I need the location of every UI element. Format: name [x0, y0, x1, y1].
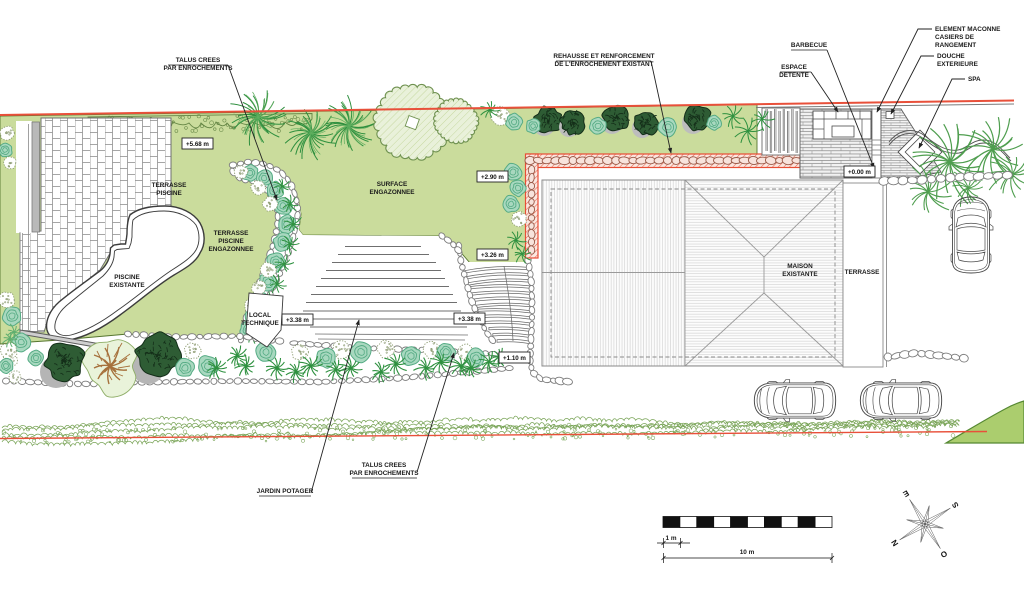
svg-text:ENGAZONNEE: ENGAZONNEE — [369, 189, 415, 196]
svg-text:TERRASSE: TERRASSE — [845, 269, 881, 276]
svg-text:REHAUSSE ET RENFORCEMENT: REHAUSSE ET RENFORCEMENT — [553, 53, 654, 60]
svg-text:PISCINE: PISCINE — [114, 274, 140, 281]
svg-text:TERRASSE: TERRASSE — [214, 230, 250, 237]
svg-text:EXISTANTE: EXISTANTE — [782, 271, 818, 278]
svg-text:O: O — [939, 549, 949, 560]
svg-text:TALUS CREES: TALUS CREES — [176, 57, 221, 64]
svg-text:BARBECUE: BARBECUE — [791, 42, 828, 49]
svg-text:N: N — [889, 538, 900, 548]
svg-text:ESPACE: ESPACE — [781, 64, 808, 71]
svg-text:PAR ENROCHEMENTS: PAR ENROCHEMENTS — [163, 65, 233, 72]
svg-text:DE L'ENROCHEMENT EXISTANT: DE L'ENROCHEMENT EXISTANT — [554, 61, 653, 68]
svg-text:CASIERS DE: CASIERS DE — [935, 34, 975, 41]
svg-text:ELEMENT MACONNE: ELEMENT MACONNE — [935, 26, 1001, 33]
svg-text:PISCINE: PISCINE — [218, 238, 244, 245]
svg-text:+1.10 m: +1.10 m — [503, 355, 526, 362]
svg-text:+5.68 m: +5.68 m — [186, 141, 209, 148]
svg-text:JARDIN POTAGER: JARDIN POTAGER — [257, 488, 314, 495]
svg-text:10 m: 10 m — [740, 549, 755, 556]
svg-text:DETENTE: DETENTE — [779, 72, 810, 79]
svg-text:+3.38 m: +3.38 m — [458, 316, 481, 323]
svg-text:SURFACE: SURFACE — [377, 181, 408, 188]
svg-text:+2.90 m: +2.90 m — [481, 174, 504, 181]
svg-text:EXISTANTE: EXISTANTE — [109, 282, 145, 289]
svg-text:+3.38 m: +3.38 m — [286, 317, 309, 324]
svg-text:+3.26 m: +3.26 m — [481, 252, 504, 259]
svg-text:PAR ENROCHEMENTS: PAR ENROCHEMENTS — [349, 470, 419, 477]
svg-text:TECHNIQUE: TECHNIQUE — [241, 320, 279, 327]
svg-text:ENGAZONNEE: ENGAZONNEE — [208, 246, 254, 253]
svg-text:TALUS CREES: TALUS CREES — [362, 462, 407, 469]
svg-text:RANGEMENT: RANGEMENT — [935, 42, 976, 49]
svg-text:MAISON: MAISON — [787, 263, 813, 270]
svg-text:LOCAL: LOCAL — [249, 312, 271, 319]
svg-text:DOUCHE: DOUCHE — [937, 53, 965, 60]
svg-text:PISCINE: PISCINE — [156, 190, 182, 197]
svg-text:EXTERIEURE: EXTERIEURE — [937, 61, 979, 68]
svg-text:SPA: SPA — [968, 76, 981, 83]
svg-text:TERRASSE: TERRASSE — [152, 182, 188, 189]
svg-text:E: E — [901, 488, 911, 499]
svg-text:+0.00 m: +0.00 m — [848, 169, 871, 176]
svg-text:1 m: 1 m — [665, 535, 676, 542]
svg-text:S: S — [950, 500, 961, 510]
